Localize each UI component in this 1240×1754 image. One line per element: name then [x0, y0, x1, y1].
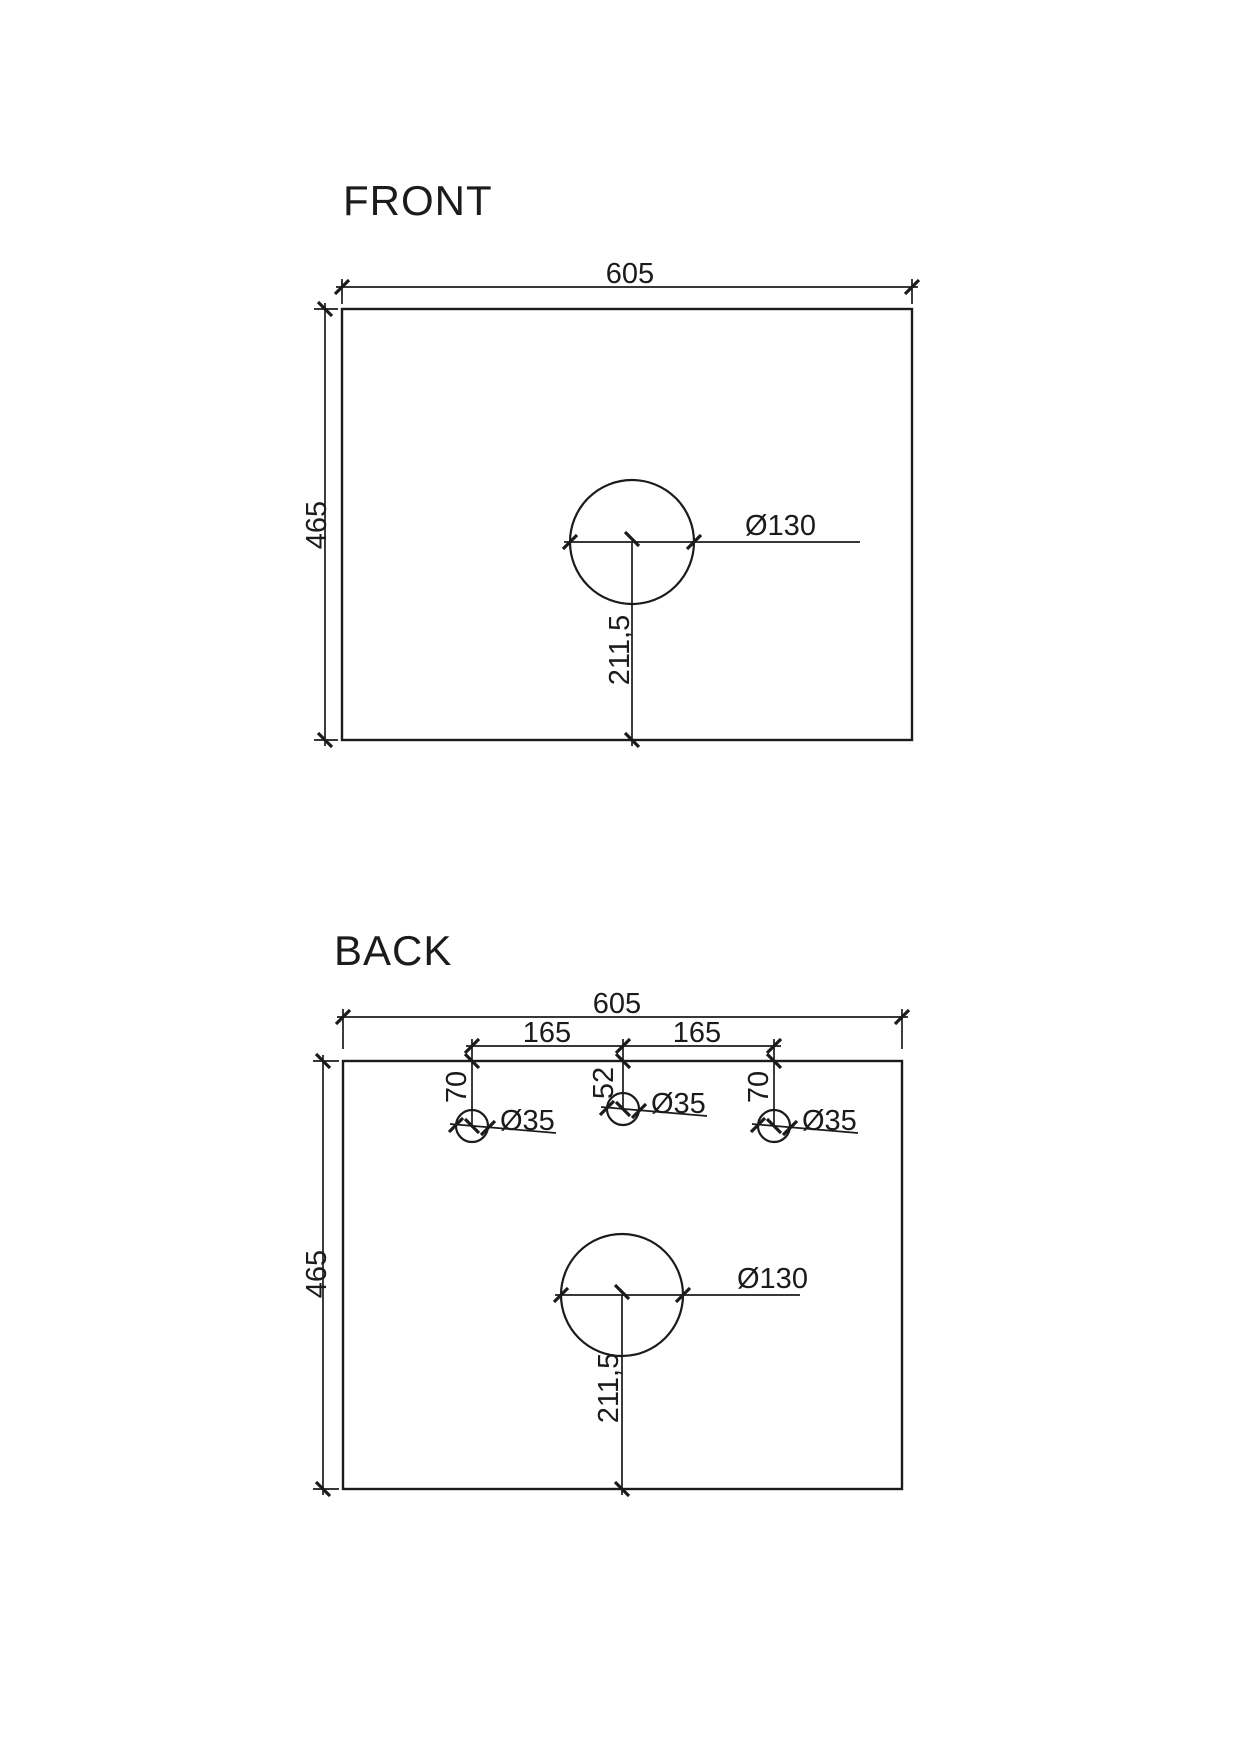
drawing-canvas: FRONT 605 465 Ø130: [0, 0, 1240, 1754]
front-width-dimension: 605: [335, 258, 919, 304]
back-view-title: BACK: [334, 927, 452, 974]
back-small-hole-3: 70 Ø35: [743, 1039, 858, 1142]
front-hole-diameter-dimension: Ø130: [563, 510, 860, 549]
front-view: FRONT 605 465 Ø130: [301, 177, 919, 747]
back-spacing-dim-text-left: 165: [523, 1017, 571, 1049]
front-hole-diameter-text: Ø130: [745, 510, 816, 542]
back-small-hole-1: 70 Ø35: [441, 1039, 556, 1142]
back-view: BACK 605 465 165 165: [301, 927, 909, 1496]
back-height-dim-text: 465: [301, 1250, 333, 1298]
back-hole-diameter-text: Ø130: [737, 1263, 808, 1295]
small-hole-diameter-text: Ø35: [651, 1088, 706, 1120]
drawing-sheet: FRONT 605 465 Ø130: [0, 0, 1240, 1754]
back-height-dimension: 465: [301, 1054, 339, 1496]
back-hole-offset-dimension: 211,5: [593, 1285, 629, 1496]
back-hole-offset-text: 211,5: [593, 1353, 625, 1423]
back-spacing-dim-text-right: 165: [673, 1017, 721, 1049]
small-hole-offset-text: 70: [441, 1071, 473, 1103]
front-width-dim-text: 605: [606, 258, 654, 290]
small-hole-offset-text: 70: [743, 1071, 775, 1103]
back-width-dim-text: 605: [593, 988, 641, 1020]
front-view-title: FRONT: [343, 177, 493, 224]
small-hole-diameter-text: Ø35: [802, 1105, 857, 1137]
small-hole-diameter-text: Ø35: [500, 1105, 555, 1137]
small-hole-offset-text: 52: [588, 1067, 620, 1099]
front-hole-offset-text: 211,5: [604, 615, 636, 685]
back-small-hole-2: 52 Ø35: [588, 1039, 707, 1125]
front-hole-offset-dimension: 211,5: [604, 532, 639, 747]
front-height-dimension: 465: [301, 302, 338, 747]
front-height-dim-text: 465: [301, 501, 333, 549]
